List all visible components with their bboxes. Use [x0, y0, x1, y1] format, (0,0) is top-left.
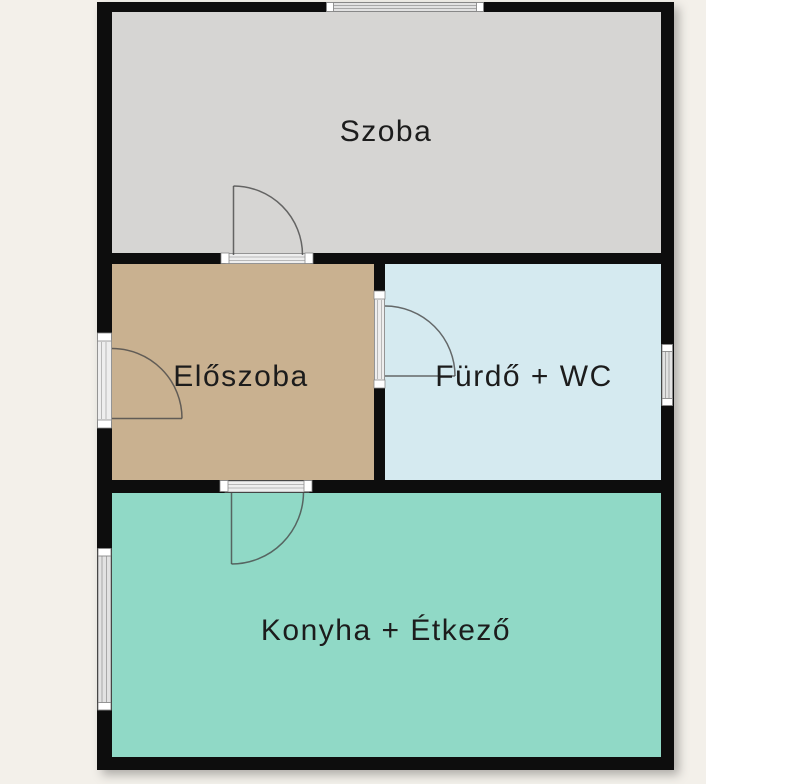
door-jamb	[220, 481, 228, 492]
floorplan-page: Szoba Előszoba Fürdő + WC Konyha + Étkez…	[0, 0, 800, 784]
label-eloszoba: Előszoba	[173, 360, 308, 393]
door-threshold	[375, 298, 385, 381]
window-cap	[662, 345, 673, 352]
window-frame	[98, 552, 111, 709]
window-right-furdo	[662, 345, 673, 406]
window-left-konyha	[98, 549, 111, 711]
window-frame	[330, 3, 480, 12]
door-threshold	[225, 481, 309, 492]
label-furdo-wc: Fürdő + WC	[435, 360, 613, 393]
window-frame	[662, 348, 673, 402]
window-cap	[98, 549, 111, 557]
label-konyha-etkezo: Konyha + Étkező	[261, 614, 511, 647]
door-jamb	[98, 420, 112, 428]
window-top-szoba	[327, 3, 484, 12]
door-threshold	[226, 254, 310, 264]
window-cap	[327, 3, 334, 12]
window-cap	[662, 399, 673, 406]
door-jamb	[221, 253, 229, 264]
door-jamb	[374, 380, 385, 388]
door-jamb	[374, 291, 385, 299]
floorplan-canvas: Szoba Előszoba Fürdő + WC Konyha + Étkez…	[0, 0, 800, 784]
door-jamb	[98, 333, 112, 341]
door-jamb	[305, 253, 313, 264]
window-cap	[477, 3, 484, 12]
label-szoba: Szoba	[340, 115, 433, 148]
window-cap	[98, 703, 111, 711]
door-threshold	[98, 340, 112, 421]
door-jamb	[304, 481, 312, 492]
